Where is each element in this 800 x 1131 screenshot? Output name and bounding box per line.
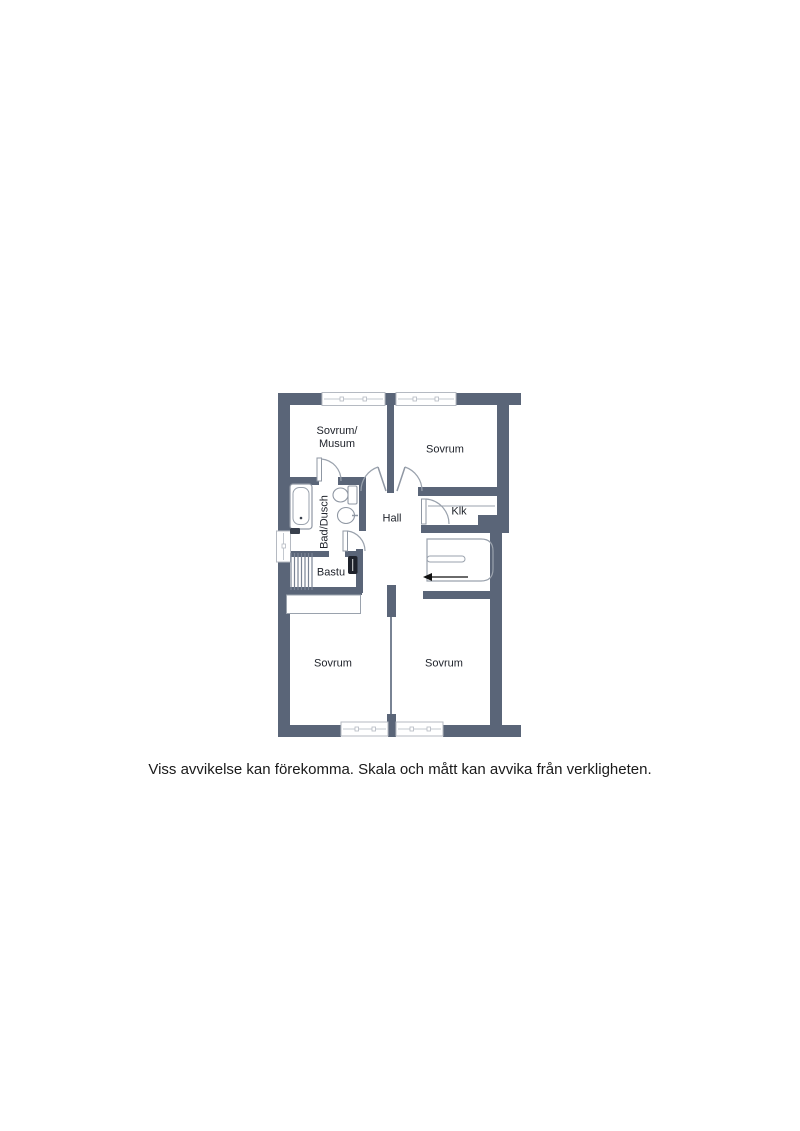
room-label-klk: Klk xyxy=(451,506,466,519)
sink xyxy=(338,508,359,524)
door-bastu xyxy=(343,531,365,551)
room-label-bastu: Bastu xyxy=(317,567,345,580)
room-label-sovrum-bottom-right: Sovrum xyxy=(425,658,463,671)
window xyxy=(341,722,388,736)
floor-plan: Sovrum/ Musum Sovrum Bad/Dusch Hall Klk … xyxy=(0,0,800,1131)
room-label-sovrum-musum: Sovrum/ Musum xyxy=(317,425,358,451)
window xyxy=(396,393,456,406)
toilet xyxy=(333,486,357,504)
door-sovrum-musum xyxy=(361,467,386,491)
door-bathroom xyxy=(317,458,341,481)
window xyxy=(277,531,291,562)
door-sovrum-top xyxy=(397,467,422,491)
stairs-direction-arrow xyxy=(423,573,468,581)
floor-plan-page: Sovrum/ Musum Sovrum Bad/Dusch Hall Klk … xyxy=(0,0,800,1131)
plan-symbols-overlay xyxy=(0,0,800,1131)
disclaimer-text: Viss avvikelse kan förekomma. Skala och … xyxy=(0,761,800,778)
window xyxy=(396,722,443,736)
bathtub xyxy=(290,484,312,534)
window xyxy=(322,393,385,406)
sauna-benches xyxy=(291,553,312,590)
wardrobe xyxy=(287,595,361,614)
room-label-sovrum-bottom-left: Sovrum xyxy=(314,658,352,671)
door-klk xyxy=(422,499,450,524)
room-label-bad-dusch: Bad/Dusch xyxy=(319,495,332,549)
stairs xyxy=(427,539,493,581)
room-label-sovrum-top: Sovrum xyxy=(426,444,464,457)
room-label-hall: Hall xyxy=(383,513,402,526)
sauna-heater xyxy=(348,556,358,574)
